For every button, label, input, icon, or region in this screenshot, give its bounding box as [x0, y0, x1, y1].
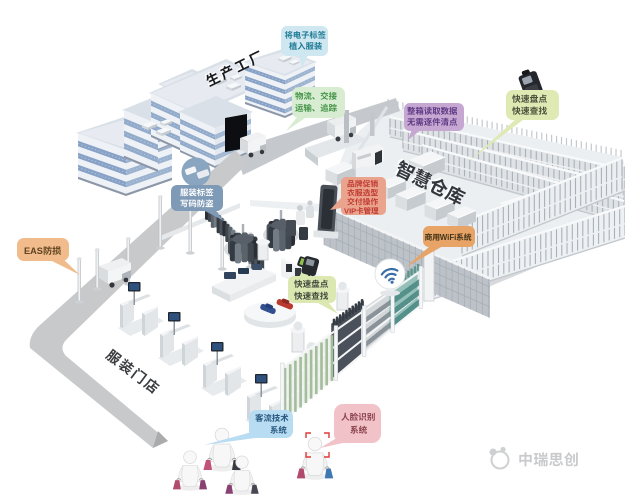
svg-text:WiFi: WiFi — [440, 233, 457, 242]
svg-text:EAS: EAS — [24, 246, 43, 256]
svg-text:VIP: VIP — [344, 207, 356, 216]
